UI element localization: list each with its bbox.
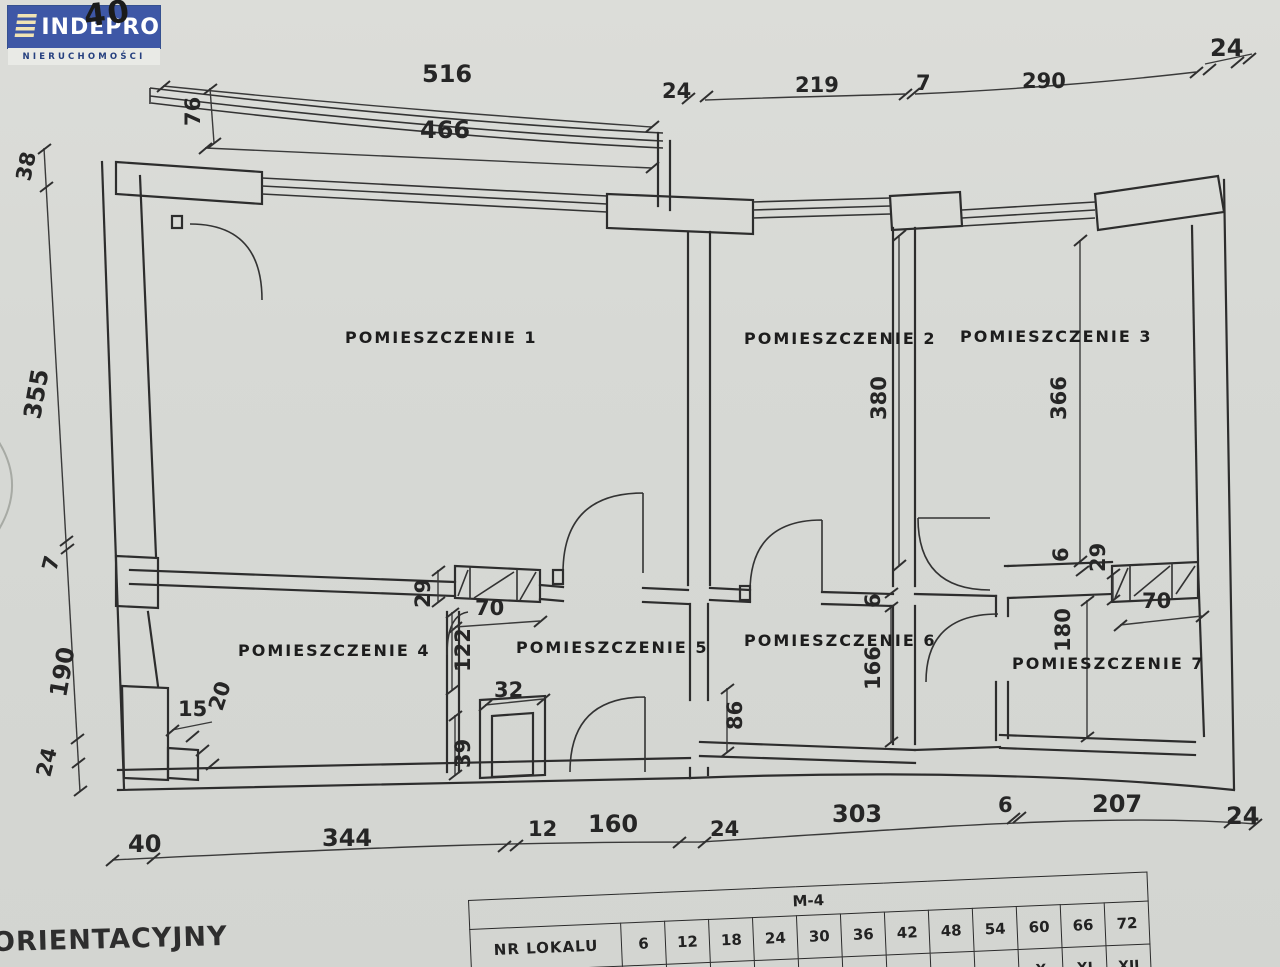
dim-219: 219 — [795, 73, 839, 97]
orientacyjny-label: ORIENTACYJNY — [0, 921, 228, 958]
dim-70-left: 70 — [475, 596, 504, 620]
table-cell — [666, 962, 712, 967]
table-cell: 42 — [884, 910, 930, 955]
door-arc-hall-room1 — [563, 493, 643, 573]
dim-86: 86 — [723, 701, 747, 730]
table-cell: 6 — [621, 921, 667, 966]
room-label-4: POMIESZCZENIE 4 — [238, 641, 431, 660]
table-cell — [710, 961, 756, 967]
interior-walls — [116, 228, 1195, 780]
room-label-7: POMIESZCZENIE 7 — [1012, 654, 1205, 673]
dim-366: 366 — [1047, 376, 1071, 420]
dim-15: 15 — [178, 697, 207, 721]
dim-160: 160 — [588, 810, 638, 838]
dim-70-right: 70 — [1142, 589, 1171, 613]
floor-plan-svg: 516 466 76 24 219 7 290 24 38 355 7 190 … — [0, 0, 1280, 967]
room-label-5: POMIESZCZENIE 5 — [516, 638, 709, 657]
handwritten-40: 40 — [82, 0, 133, 35]
door-arc-room1 — [190, 224, 262, 300]
dim-76: 76 — [181, 97, 205, 126]
dim-24-bottom-a: 24 — [710, 817, 739, 841]
dim-190: 190 — [44, 645, 80, 699]
table-cell: 72 — [1104, 901, 1150, 946]
dim-207: 207 — [1092, 790, 1142, 818]
dimension-lines — [38, 53, 1262, 866]
dim-7-left: 7 — [38, 553, 65, 573]
dim-29-right: 29 — [1086, 543, 1110, 572]
table-cell — [886, 953, 932, 967]
room-label-6: POMIESZCZENIE 6 — [744, 631, 937, 650]
table-row-header: NR LOKALU — [470, 923, 623, 967]
dim-32: 32 — [494, 678, 523, 702]
door-arc-room6 — [750, 520, 822, 592]
table-cell — [974, 950, 1020, 967]
table-cell: 66 — [1060, 903, 1106, 948]
scanned-floor-plan-page: 516 466 76 24 219 7 290 24 38 355 7 190 … — [0, 0, 1280, 967]
table-cell: XI — [1062, 946, 1108, 967]
dim-24-left: 24 — [32, 745, 62, 779]
dim-12: 12 — [528, 817, 557, 841]
dim-290: 290 — [1022, 69, 1066, 93]
dim-39: 39 — [451, 739, 475, 768]
dim-355: 355 — [18, 367, 54, 421]
dim-40-bottom: 40 — [128, 830, 161, 858]
dim-6-right: 6 — [1049, 547, 1073, 562]
dim-344: 344 — [322, 824, 372, 852]
dim-20: 20 — [204, 678, 236, 713]
table-cell — [930, 951, 976, 967]
dim-7-top: 7 — [916, 71, 931, 95]
door-jamb — [740, 586, 750, 600]
room-label-3: POMIESZCZENIE 3 — [960, 327, 1153, 346]
room-label-2: POMIESZCZENIE 2 — [744, 329, 937, 348]
table-cell — [754, 959, 800, 967]
table-cell: 18 — [709, 918, 755, 963]
indepro-logo-subtitle: NIERUCHOMOŚCI — [8, 48, 160, 65]
dim-380: 380 — [867, 376, 891, 420]
dim-29-left: 29 — [411, 579, 435, 608]
door-arc-room7 — [926, 614, 998, 682]
table-cell: 48 — [928, 908, 974, 953]
dim-24-top-a: 24 — [662, 79, 691, 103]
dim-180: 180 — [1051, 608, 1075, 652]
table-cell: 24 — [752, 916, 798, 961]
door-jamb — [172, 216, 182, 228]
dim-516: 516 — [422, 60, 472, 88]
table-cell: X — [1018, 948, 1064, 967]
table-cell: XII — [1106, 944, 1152, 967]
table-cell: 36 — [840, 912, 886, 957]
dim-466: 466 — [420, 116, 470, 144]
indepro-logo-icon — [14, 14, 37, 40]
dim-122: 122 — [451, 628, 475, 672]
table-cell: 54 — [972, 907, 1018, 952]
dim-166: 166 — [861, 646, 885, 690]
table-cell: 60 — [1016, 905, 1062, 950]
dim-303: 303 — [832, 800, 882, 828]
dim-6-bottom: 6 — [998, 793, 1013, 817]
door-jamb — [553, 570, 563, 584]
table-cell — [842, 955, 888, 967]
table-cell: 30 — [796, 914, 842, 959]
outer-walls — [102, 162, 1234, 790]
door-arc-hall — [918, 518, 990, 590]
dimension-labels: 516 466 76 24 219 7 290 24 38 355 7 190 … — [11, 34, 1259, 858]
dim-38: 38 — [11, 149, 41, 183]
dim-24-top-b: 24 — [1210, 34, 1243, 62]
table-cell — [798, 957, 844, 967]
table-cell: 12 — [665, 919, 711, 964]
page-edge-artifact — [0, 432, 12, 534]
dim-6-room6: 6 — [861, 593, 885, 608]
dim-24-bottom-b: 24 — [1226, 802, 1259, 830]
room-label-1: POMIESZCZENIE 1 — [345, 328, 538, 347]
